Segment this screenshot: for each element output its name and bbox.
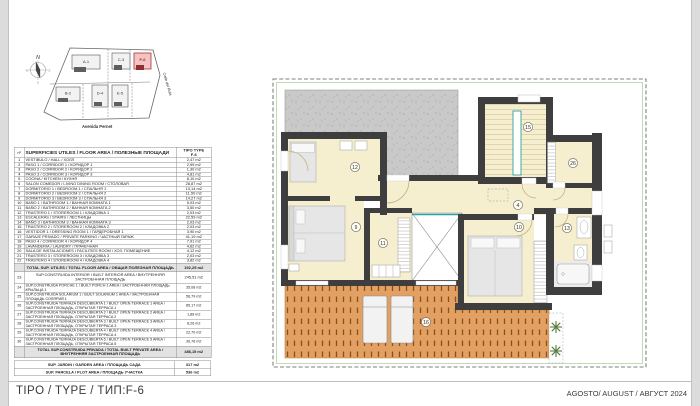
svg-text:W: W (26, 69, 29, 73)
col-header-number: nº (14, 147, 24, 158)
svg-text:16: 16 (423, 320, 429, 326)
door-opening (281, 151, 288, 171)
footer-divider (8, 381, 692, 382)
svg-text:10: 10 (516, 225, 522, 231)
date-label: AGOSTO/ AUGUST / АВГУСТ 2024 (567, 389, 687, 398)
window (592, 265, 602, 281)
table-row: 25 SUP.CONSTRUIDA SOLARIUM 1 / BUILT SOL… (14, 292, 211, 301)
stairs-15 (478, 95, 553, 184)
svg-text:13: 13 (564, 226, 570, 232)
total-built-row: TOTAL SUP.CONSTRUIDA PRIVADA / TOTAL BUI… (14, 346, 211, 358)
site-building-E-5: E-5 (112, 85, 128, 107)
svg-text:E: E (49, 69, 51, 73)
window (518, 95, 540, 102)
window (281, 245, 288, 269)
col-header-type: TIPO TYPE F-6 (176, 147, 211, 158)
stair-railing (513, 111, 521, 175)
garden-row: SUP. JARDIN / GARDEN AREA / ПЛОЩАДЬ САДА… (14, 361, 211, 369)
planter-strip (549, 313, 563, 363)
svg-text:S: S (37, 81, 39, 85)
room-marker-4: 4 (513, 200, 522, 209)
street-label-bottom: Avenida Pernet (82, 124, 113, 129)
window (592, 191, 602, 215)
total-useful-row: TOTAL SUP. UTILES / TOTAL FLOOR AREA / О… (14, 263, 211, 272)
bed-bedroom-9 (289, 206, 345, 271)
ac-unit (604, 225, 612, 237)
door-opening (518, 214, 532, 220)
drawing-sheet: { "meta": { "type_label": "TIPO / TYPE /… (0, 0, 700, 406)
room-marker-9: 9 (351, 222, 360, 231)
table-header-row: nº SUPERFICIES UTILES / FLOOR AREA / ПОЛ… (14, 147, 211, 158)
closet-bedroom-10 (534, 241, 547, 303)
site-plan: N W E S A-1 C-3 F-6 B-2 D-4 (20, 15, 185, 137)
type-title: TIPO / TYPE / ТИП:F-6 (16, 385, 144, 397)
garden-plot-table: SUP. JARDIN / GARDEN AREA / ПЛОЩАДЬ САДА… (14, 361, 211, 377)
ac-unit (604, 241, 612, 253)
room-marker-26: 26 (568, 158, 577, 167)
page-edge-right (691, 0, 700, 406)
site-building-B-2: B-2 (56, 87, 80, 102)
svg-text:15: 15 (525, 125, 531, 131)
site-building-A-1: A-1 (72, 55, 100, 72)
built-area-rows: 24 SUP.CONSTRUIDA PORCHE 1 / BUILT PORCH… (14, 283, 211, 346)
table-row: 29 SUP.CONSTRUIDA TERRAZA DESCUBIERTA 4 … (14, 328, 211, 337)
room-marker-11: 11 (378, 238, 387, 247)
svg-text:E-5: E-5 (117, 91, 124, 96)
svg-text:C-3: C-3 (118, 57, 125, 62)
col-header-title: SUPERFICIES UTILES / FLOOR AREA / ПОЛЕЗН… (24, 147, 176, 158)
room-marker-12: 12 (350, 162, 359, 171)
site-building-F-6-highlighted: F-6 (134, 53, 151, 70)
svg-text:26: 26 (570, 161, 576, 167)
room-marker-15: 15 (523, 122, 532, 131)
svg-text:11: 11 (380, 241, 385, 247)
svg-text:12: 12 (352, 165, 358, 171)
floor-plan: 12 9 11 15 26 4 10 13 (270, 75, 648, 372)
svg-text:N: N (36, 55, 40, 61)
svg-text:B-2: B-2 (65, 91, 72, 96)
svg-text:A-1: A-1 (83, 59, 90, 64)
door-opening (522, 178, 536, 184)
bed-bedroom-10 (468, 236, 522, 296)
areas-table: nº SUPERFICIES UTILES / FLOOR AREA / ПОЛ… (14, 147, 212, 358)
page-edge-left (0, 0, 9, 406)
room-marker-10: 10 (514, 222, 523, 231)
terrace-door (416, 281, 456, 285)
site-building-D-4: D-4 (92, 85, 108, 107)
void-over-living (412, 213, 462, 281)
plot-row: SUP. PARCELA / PLOT AREA / ПЛОЩАДЬ УЧАСТ… (14, 368, 211, 376)
svg-text:4: 4 (517, 203, 520, 209)
site-building-C-3: C-3 (112, 53, 130, 70)
room-marker-16: 16 (421, 317, 430, 326)
svg-text:D-4: D-4 (97, 91, 104, 96)
door-opening (556, 208, 568, 214)
door-opening (553, 182, 565, 188)
table-row: 27 SUP.CONSTRUIDA TERRAZA DESCUBIERTA 2 … (14, 310, 211, 319)
table-row: 28 SUP.CONSTRUIDA TERRAZA DESCUBIERTA 3 … (14, 319, 211, 328)
room-marker-13: 13 (562, 223, 571, 232)
compass-icon: N W E S (26, 55, 51, 85)
svg-text:9: 9 (355, 225, 358, 231)
built-interior-row: 23 SUP.CONSTRUIDA INTERIOR / BUILT INTER… (14, 272, 211, 284)
svg-text:F-6: F-6 (140, 57, 147, 62)
bed-bedroom-12 (290, 142, 316, 182)
table-row: 26 SUP.CONSTRUIDA TERRAZA DESCUBIERTA 1 … (14, 301, 211, 310)
useful-area-rows: 1 VESTIBULO / HALL / ХОЛЛ 2,47 m2 2 PASO… (14, 158, 211, 264)
plant-icon (550, 345, 562, 357)
table-row: 30 SUP.CONSTRUIDA TERRAZA DESCUBIERTA 5 … (14, 337, 211, 346)
table-row: 24 SUP.CONSTRUIDA PORCHE 1 / BUILT PORCH… (14, 283, 211, 292)
street-label-right: Calle del Rubi (162, 72, 172, 96)
terrace-door (296, 281, 328, 285)
areas-table-container: nº SUPERFICIES UTILES / FLOOR AREA / ПОЛ… (14, 147, 211, 376)
door-opening (387, 175, 409, 181)
